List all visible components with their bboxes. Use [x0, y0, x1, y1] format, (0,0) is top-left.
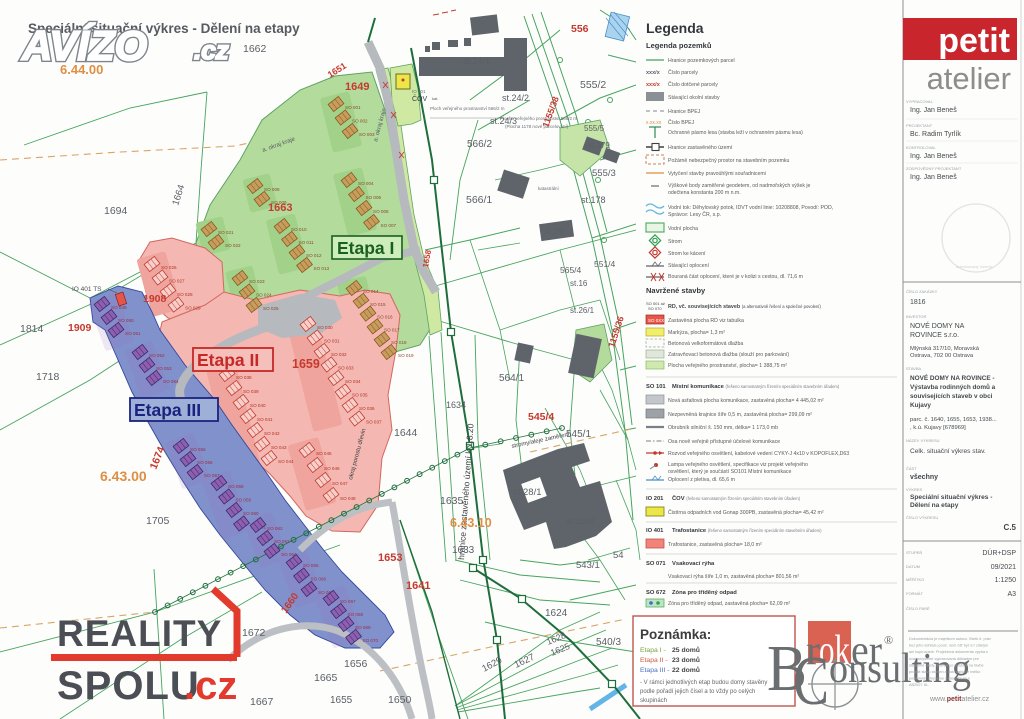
svg-text:Poznámka:: Poznámka: — [640, 627, 711, 642]
svg-text:stromy/aleje zaměření: stromy/aleje zaměření — [511, 432, 570, 450]
svg-text:autorizovaný inženýr: autorizovaný inženýr — [956, 264, 993, 269]
svg-text:SO 016: SO 016 — [377, 315, 393, 320]
svg-text:INVESTOR: INVESTOR — [906, 314, 926, 319]
svg-text:Vsakovací rýha: Vsakovací rýha — [672, 561, 715, 567]
svg-text:SO 047: SO 047 — [332, 481, 348, 486]
svg-text:Místní komunikace (řešeno samo: Místní komunikace (řešeno samostatným ří… — [672, 384, 840, 390]
svg-text:ČÍSLO PARÉ: ČÍSLO PARÉ — [906, 606, 930, 611]
svg-text:RD, vč. souvisejících staveb (: RD, vč. souvisejících staveb (a alternat… — [668, 304, 821, 310]
svg-text:Osa nově veřejně přístupné úče: Osa nově veřejně přístupné účelové komun… — [668, 439, 780, 445]
svg-text:Markýza, plocha= 1,3 m²: Markýza, plocha= 1,3 m² — [668, 330, 725, 336]
svg-text:odečtena konstanta 200 m n.m.: odečtena konstanta 200 m n.m. — [668, 190, 741, 196]
svg-text:Zóna pro tříděný odpad, zastav: Zóna pro tříděný odpad, zastavěná plocha… — [668, 601, 790, 607]
svg-text:souvisejících staveb v obci: souvisejících staveb v obci — [910, 393, 993, 400]
svg-text:SO 001: SO 001 — [345, 105, 361, 110]
svg-text:SO 027: SO 027 — [169, 279, 185, 284]
svg-text:xxx/x: xxx/x — [646, 70, 661, 76]
svg-text:všechny: všechny — [910, 474, 938, 481]
svg-text:bez jeho súhlasu použ. nem ôžť: bez jeho súhlasu použ. nem ôžť byť a ť z… — [909, 644, 988, 648]
svg-text:566/1: 566/1 — [466, 194, 492, 206]
svg-text:st.26/1: st.26/1 — [570, 306, 595, 315]
svg-text:SO 028: SO 028 — [177, 292, 193, 297]
svg-text:hranice zastavěného území k 1.: hranice zastavěného území k 1.8.20 — [456, 423, 476, 560]
svg-text:Etapa II -: Etapa II - — [640, 657, 668, 664]
svg-text:SO 014: SO 014 — [363, 289, 379, 294]
svg-text:SO 067: SO 067 — [340, 599, 356, 604]
svg-text:Oplocení z pletiva, dl. 65,6 m: Oplocení z pletiva, dl. 65,6 m — [668, 477, 735, 483]
svg-text:555/3: 555/3 — [592, 168, 616, 179]
svg-text:1655: 1655 — [330, 695, 353, 706]
svg-text:25 domů: 25 domů — [672, 646, 700, 654]
svg-text:Rozvod veřejného osvětlení, ka: Rozvod veřejného osvětlení, kabelové ved… — [668, 451, 849, 457]
svg-text:KONTROLOVAL: KONTROLOVAL — [906, 145, 936, 150]
svg-text:povšimnúť úmyselne s kreslí ťa: povšimnúť úmyselne s kreslí ťa na v — [909, 677, 970, 681]
svg-text:Betonová velkoformátová dlažba: Betonová velkoformátová dlažba — [668, 341, 743, 347]
svg-text:SO 070: SO 070 — [363, 638, 379, 643]
svg-text:Zastavěná plocha RD viz tabulk: Zastavěná plocha RD viz tabulka — [668, 318, 744, 324]
svg-text:556: 556 — [571, 23, 589, 35]
svg-text:SO 046: SO 046 — [324, 466, 340, 471]
svg-text:Trafostanice (řešeno samostatn: Trafostanice (řešeno samostatným řízením… — [672, 528, 822, 534]
svg-text:projekt stavu zkošen a dok. og: projekt stavu zkošen a dok. oglša je mél… — [909, 670, 980, 674]
svg-text:SO 022: SO 022 — [225, 243, 241, 248]
svg-text:SO 050: SO 050 — [118, 318, 134, 323]
svg-text:SO 053: SO 053 — [156, 366, 172, 371]
svg-text:1663: 1663 — [268, 202, 292, 214]
svg-text:SO 056: SO 056 — [197, 460, 213, 465]
svg-text:PROJEKTANT: PROJEKTANT — [906, 123, 933, 128]
svg-text:VÝKRES: VÝKRES — [906, 487, 923, 492]
svg-text:SO 003: SO 003 — [359, 132, 375, 137]
svg-text:STAVBA: STAVBA — [906, 366, 922, 371]
svg-text:Ing. Jan Beneš: Ing. Jan Beneš — [910, 174, 957, 181]
svg-text:st.24/1: st.24/1 — [463, 56, 490, 66]
svg-text:Vytyčení stavby pravoúhlými so: Vytyčení stavby pravoúhlými souřadnicemi — [668, 171, 766, 177]
svg-text:IO 201: IO 201 — [412, 89, 426, 94]
svg-text:Strom: Strom — [668, 239, 682, 245]
svg-text:SO 039: SO 039 — [243, 389, 259, 394]
svg-text:xxx/x: xxx/x — [646, 82, 661, 88]
svg-text:- V rámci jednotlivých etap bu: - V rámci jednotlivých etap budou domy s… — [640, 680, 767, 686]
svg-text:NÁZEV VÝKRESU: NÁZEV VÝKRESU — [906, 438, 940, 443]
svg-text:1816: 1816 — [910, 299, 926, 306]
svg-text:DÚR+DSP: DÚR+DSP — [982, 548, 1016, 557]
svg-text:Lampa veřejného osvětlení, spe: Lampa veřejného osvětlení, specifikace v… — [668, 462, 808, 468]
svg-text:NOVÉ DOMY NA: NOVÉ DOMY NA — [910, 321, 965, 330]
svg-text:podle pořadí jejich čísel a to: podle pořadí jejich čísel a to vždy po c… — [640, 689, 755, 695]
svg-text:Speciální situační výkres -: Speciální situační výkres - — [910, 494, 992, 501]
svg-text:IO 201: IO 201 — [646, 496, 664, 502]
svg-text:09/2021: 09/2021 — [991, 564, 1016, 571]
svg-text:ČOV: ČOV — [412, 94, 428, 103]
svg-text:SO 037: SO 037 — [366, 420, 382, 425]
svg-text:SO 071: SO 071 — [646, 561, 666, 567]
svg-text:stavebné úkely. Stavba po uváž: stavebné úkely. Stavba po uvážení na ťav… — [909, 663, 984, 667]
svg-text:Kujavy: Kujavy — [910, 402, 931, 409]
svg-text:, k.ú. Kujavy [678969]: , k.ú. Kujavy [678969] — [910, 425, 966, 431]
svg-text:SO 033: SO 033 — [338, 366, 354, 371]
svg-text:SPOLU: SPOLU — [57, 664, 200, 708]
svg-text:SO 005: SO 005 — [366, 195, 382, 200]
svg-text:AB2007 DL: AB2007 DL — [909, 683, 928, 687]
svg-text:FORMÁT: FORMÁT — [906, 591, 923, 596]
svg-text:SO 004: SO 004 — [358, 181, 374, 186]
svg-text:Vodní tok: Děhylovský potok, I: Vodní tok: Děhylovský potok, IDVT vodní … — [668, 205, 833, 211]
svg-text:SO 051: SO 051 — [125, 331, 141, 336]
svg-text:DATUM: DATUM — [906, 564, 920, 569]
svg-text:545/1: 545/1 — [566, 429, 591, 440]
svg-text:1644: 1644 — [394, 427, 418, 439]
svg-text:1656: 1656 — [344, 658, 368, 670]
svg-text:SO 019: SO 019 — [398, 353, 414, 358]
svg-text:Výškové body zaměřené geodetem: Výškové body zaměřené geodetem, od nadmo… — [668, 183, 811, 189]
svg-text:SO 045: SO 045 — [316, 451, 332, 456]
svg-text:Etapa III -: Etapa III - — [640, 667, 669, 674]
svg-text:Celk. situační výkres stav.: Celk. situační výkres stav. — [910, 448, 986, 455]
svg-text:ČÍSLO ZAKÁZKY: ČÍSLO ZAKÁZKY — [906, 289, 938, 294]
svg-text:úvaj úmyselne vypracovaná dôkl: úvaj úmyselne vypracovaná dôkladne pre — [909, 657, 979, 661]
svg-text:1694: 1694 — [104, 205, 128, 217]
svg-text:VYPRACOVAL: VYPRACOVAL — [906, 99, 934, 104]
svg-text:SO 015: SO 015 — [370, 302, 386, 307]
svg-text:AVÍZO: AVÍZO — [21, 22, 147, 69]
svg-text:SO 063: SO 063 — [274, 539, 290, 544]
svg-text:SO 070: SO 070 — [648, 306, 662, 311]
svg-text:1650: 1650 — [388, 694, 412, 706]
svg-text:Stávající oplocení: Stávající oplocení — [668, 263, 710, 269]
svg-text:SO 006: SO 006 — [373, 209, 389, 214]
svg-text:A3: A3 — [1007, 591, 1016, 598]
svg-text:SO 058: SO 058 — [228, 484, 244, 489]
svg-text:C: C — [793, 643, 829, 719]
svg-text:1667: 1667 — [250, 696, 274, 708]
svg-text:555/5: 555/5 — [584, 124, 605, 133]
svg-text:Ploch veřejného prostranství 5: Ploch veřejného prostranství 566/2 m — [430, 106, 505, 111]
svg-text:SO 060: SO 060 — [243, 511, 259, 516]
svg-text:Plocha veřejného prostranství,: Plocha veřejného prostranství, plocha= 1… — [668, 363, 787, 369]
svg-text:SO 008: SO 008 — [264, 187, 280, 192]
svg-text:ČOV (řešeno samostatným řízení: ČOV (řešeno samostatným řízením speciáln… — [672, 495, 801, 502]
svg-text:540/3: 540/3 — [596, 637, 621, 648]
svg-text:SO 043: SO 043 — [271, 445, 287, 450]
svg-text:parc. č. 1640, 1655, 1653, 193: parc. č. 1640, 1655, 1653, 1938... — [910, 417, 997, 423]
svg-text:Legenda: Legenda — [646, 20, 704, 36]
svg-text:555/2: 555/2 — [580, 79, 606, 91]
svg-text:1624: 1624 — [545, 608, 568, 619]
svg-text:1674: 1674 — [148, 445, 168, 471]
svg-text:SO 025: SO 025 — [263, 306, 279, 311]
svg-text:SO 068: SO 068 — [348, 612, 364, 617]
svg-text:st.24/2: st.24/2 — [502, 93, 529, 103]
svg-text:1908: 1908 — [143, 293, 167, 305]
svg-text:Číslo BPEJ: Číslo BPEJ — [668, 119, 695, 126]
svg-text:C.5: C.5 — [1004, 523, 1017, 532]
svg-text:SO 002: SO 002 — [352, 119, 368, 124]
svg-text:54: 54 — [613, 550, 624, 561]
svg-text:SO 017: SO 017 — [384, 327, 400, 332]
svg-text:st.16: st.16 — [570, 279, 588, 288]
svg-text:Nezpevněná krajnice šíře 0,5 m: Nezpevněná krajnice šíře 0,5 m, zastavěn… — [668, 412, 812, 418]
svg-text:1649: 1649 — [345, 81, 369, 93]
svg-text:st.28/1: st.28/1 — [513, 487, 542, 498]
svg-text:1672: 1672 — [242, 627, 266, 639]
svg-text:ČÁST: ČÁST — [906, 466, 917, 471]
svg-text:Bouraná část oplocení, které j: Bouraná část oplocení, které je v kolizi… — [668, 274, 803, 280]
svg-text:Ochranné pásmo lesa (stavba le: Ochranné pásmo lesa (stavba leží v ochra… — [668, 130, 803, 136]
svg-text:www.petitatelier.cz: www.petitatelier.cz — [929, 696, 990, 703]
svg-text:SO 021: SO 021 — [218, 230, 234, 235]
svg-text:ZODPOVĚDNÝ PROJEKTANT: ZODPOVĚDNÝ PROJEKTANT — [906, 166, 962, 171]
svg-text:1662: 1662 — [243, 43, 267, 55]
svg-text:566/2: 566/2 — [467, 139, 492, 150]
svg-text:st.178: st.178 — [581, 195, 606, 205]
svg-text:st.25: st.25 — [545, 226, 564, 236]
svg-text:6.43.00: 6.43.00 — [100, 468, 147, 484]
svg-text:SO 030: SO 030 — [317, 325, 333, 330]
svg-text:Výstavba rodinných domů a: Výstavba rodinných domů a — [910, 383, 996, 391]
svg-text:1:1250: 1:1250 — [995, 577, 1017, 584]
svg-text:SO 035: SO 035 — [352, 393, 368, 398]
svg-text:1634: 1634 — [446, 400, 466, 410]
svg-text:SO 042: SO 042 — [264, 431, 280, 436]
svg-text:Dělení na etapy: Dělení na etapy — [910, 502, 959, 509]
svg-text:SO 066: SO 066 — [311, 577, 327, 582]
svg-text:Vodní plocha: Vodní plocha — [668, 226, 698, 232]
svg-text:22 domů: 22 domů — [672, 666, 700, 674]
svg-text:Mlýnská 317/10, Moravská: Mlýnská 317/10, Moravská — [910, 346, 980, 352]
svg-text:STUPEŇ: STUPEŇ — [906, 550, 922, 555]
svg-text:osvětlení, který je součástí S: osvětlení, který je součástí SO101 Místn… — [668, 469, 792, 475]
svg-text:skupinách: skupinách — [640, 698, 667, 704]
svg-text:Číslo dotčené parcely: Číslo dotčené parcely — [668, 81, 718, 88]
svg-text:SO 057: SO 057 — [204, 473, 220, 478]
svg-text:Zóna pro tříděný odpad: Zóna pro tříděný odpad — [672, 590, 737, 596]
svg-text:1909: 1909 — [68, 322, 92, 334]
svg-text:Obrubník silniční š. 150 mm, d: Obrubník silniční š. 150 mm, délka= 1 17… — [668, 425, 778, 431]
svg-text:Bc. Radim Tyrlík: Bc. Radim Tyrlík — [910, 131, 961, 138]
svg-text:Ing. Jan Beneš: Ing. Jan Beneš — [910, 153, 957, 160]
svg-text:SO 013: SO 013 — [314, 266, 330, 271]
svg-text:SO 011: SO 011 — [299, 240, 315, 245]
svg-text:1641: 1641 — [406, 580, 430, 592]
svg-text:ani kopírované. Projektová dok: ani kopírované. Projektová dokumenta vyp… — [909, 650, 988, 654]
svg-text:SO 672: SO 672 — [646, 590, 666, 596]
svg-text:Hranice pozemkových parcel: Hranice pozemkových parcel — [668, 58, 735, 64]
svg-text:SO 018: SO 018 — [391, 340, 407, 345]
svg-text:Trafostanice, zastavěná plocha: Trafostanice, zastavěná plocha= 18,0 m² — [668, 542, 762, 548]
svg-text:SO 062: SO 062 — [267, 526, 283, 531]
svg-text:SO 044: SO 044 — [278, 459, 294, 464]
svg-text:SO 038: SO 038 — [236, 375, 252, 380]
svg-text:Etapa I: Etapa I — [337, 238, 394, 258]
svg-text:Navržené stavby: Navržené stavby — [646, 286, 706, 295]
svg-text:6.43.10: 6.43.10 — [450, 516, 492, 530]
svg-text:SO 024: SO 024 — [256, 293, 272, 298]
svg-text:SO 052: SO 052 — [149, 353, 165, 358]
svg-text:REALITY: REALITY — [57, 613, 222, 654]
svg-text:SO 065: SO 065 — [303, 563, 319, 568]
svg-text:SO 031: SO 031 — [324, 339, 340, 344]
svg-text:545/4: 545/4 — [528, 411, 554, 423]
svg-text:Etapa II: Etapa II — [197, 350, 259, 370]
svg-text:SO 101: SO 101 — [646, 384, 666, 390]
svg-text:1718: 1718 — [36, 371, 60, 383]
svg-text:SO 023: SO 023 — [249, 279, 265, 284]
svg-text:SO 034: SO 034 — [345, 379, 361, 384]
svg-text:1155/36: 1155/36 — [606, 315, 625, 349]
svg-text:1658: 1658 — [421, 249, 433, 269]
svg-text:SO 012: SO 012 — [306, 253, 322, 258]
svg-text:SO 041: SO 041 — [257, 417, 273, 422]
svg-text:Správce: Lesy ČR, s.p.: Správce: Lesy ČR, s.p. — [668, 211, 721, 218]
svg-text:.cz: .cz — [194, 35, 229, 65]
svg-text:565/4: 565/4 — [560, 265, 582, 275]
svg-text:Etapa I -: Etapa I - — [640, 647, 666, 654]
svg-text:MĚŘÍTKO: MĚŘÍTKO — [906, 577, 924, 582]
svg-text:st.179: st.179 — [588, 141, 610, 150]
svg-text:543/1: 543/1 — [576, 560, 600, 571]
svg-text:Etapa III: Etapa III — [134, 400, 201, 420]
svg-text:1705: 1705 — [146, 515, 170, 527]
svg-text:1664: 1664 — [170, 183, 187, 207]
svg-text:SO 029: SO 029 — [185, 306, 201, 311]
svg-text:SO 036: SO 036 — [359, 406, 375, 411]
svg-text:1627: 1627 — [513, 652, 537, 671]
svg-text:IO 401 TS: IO 401 TS — [72, 286, 102, 293]
svg-text:Číslo parcely: Číslo parcely — [668, 69, 698, 76]
svg-text:(Plocha 1178 nové parcelování): (Plocha 1178 nové parcelování) — [505, 124, 569, 129]
svg-text:Strom ke kácení: Strom ke kácení — [668, 251, 706, 257]
svg-text:SO 007: SO 007 — [381, 223, 397, 228]
svg-text:1665: 1665 — [314, 672, 338, 684]
svg-text:IO 401: IO 401 — [646, 528, 664, 534]
svg-text:ČÍSLO VÝKRESU: ČÍSLO VÝKRESU — [906, 515, 938, 520]
svg-text:x.xx.xx: x.xx.xx — [646, 120, 662, 126]
svg-text:Plocha veřejného prostranství: Plocha veřejného prostranství 566/2 m — [500, 116, 577, 121]
svg-text:564/1: 564/1 — [499, 373, 524, 384]
svg-text:Ing. Jan Beneš: Ing. Jan Beneš — [910, 107, 957, 114]
svg-text:Zatravňovací betonová dlažba (: Zatravňovací betonová dlažba (slouží pro… — [668, 352, 789, 358]
svg-text:®: ® — [884, 633, 893, 647]
svg-text:Stávající okolní stavby: Stávající okolní stavby — [668, 95, 720, 101]
svg-text:Ostrava, 702 00 Ostrava: Ostrava, 702 00 Ostrava — [910, 353, 974, 359]
svg-text:23 domů: 23 domů — [672, 656, 700, 664]
svg-text:Dokumentácia je majetkom autor: Dokumentácia je majetkom autora. Všetk é… — [909, 637, 991, 641]
svg-text:SO 048: SO 048 — [340, 496, 356, 501]
svg-text:Nová asfaltová plocha komunika: Nová asfaltová plocha komunikace, zastav… — [668, 398, 824, 404]
svg-text:katastrální: katastrální — [538, 186, 560, 191]
svg-text:st.28/2: st.28/2 — [566, 516, 595, 527]
svg-text:Vsakovací rýha šíře 1,0 m, zas: Vsakovací rýha šíře 1,0 m, zastavěná plo… — [668, 574, 799, 580]
svg-text:SO 054: SO 054 — [163, 379, 179, 384]
svg-text:SO 040: SO 040 — [250, 403, 266, 408]
svg-text:Hranice BPEJ: Hranice BPEJ — [668, 109, 701, 115]
svg-text:551/4: 551/4 — [594, 259, 616, 269]
svg-text:Hranice zastavěného území: Hranice zastavěného území — [668, 145, 733, 151]
svg-text:petit: petit — [938, 22, 1010, 60]
svg-text:SO 0XX: SO 0XX — [648, 318, 664, 323]
svg-text:SO 059: SO 059 — [236, 498, 252, 503]
svg-text:SO 026: SO 026 — [161, 265, 177, 270]
svg-text:atelier: atelier — [927, 61, 1011, 96]
svg-text:SO 069: SO 069 — [355, 625, 371, 630]
svg-text:ROVINCE s.r.o.: ROVINCE s.r.o. — [910, 332, 959, 339]
svg-text:1653: 1653 — [378, 552, 402, 564]
svg-text:1659: 1659 — [292, 357, 320, 371]
svg-text:SO 055: SO 055 — [190, 447, 206, 452]
svg-text:Legenda pozemků: Legenda pozemků — [646, 41, 712, 50]
svg-text:SO 032: SO 032 — [331, 352, 347, 357]
svg-text:NOVÉ DOMY NA ROVINCE -: NOVÉ DOMY NA ROVINCE - — [910, 373, 995, 382]
svg-text:kat.: kat. — [432, 96, 438, 101]
svg-text:1814: 1814 — [20, 323, 44, 335]
svg-text:SO 010: SO 010 — [291, 227, 307, 232]
svg-text:.cz: .cz — [184, 664, 237, 708]
svg-text:Požárně nebezpečný prostor na: Požárně nebezpečný prostor na stavebním … — [668, 158, 790, 164]
svg-text:Čistírna odpadních vod Gonap 3: Čistírna odpadních vod Gonap 300PB, zast… — [668, 509, 824, 516]
